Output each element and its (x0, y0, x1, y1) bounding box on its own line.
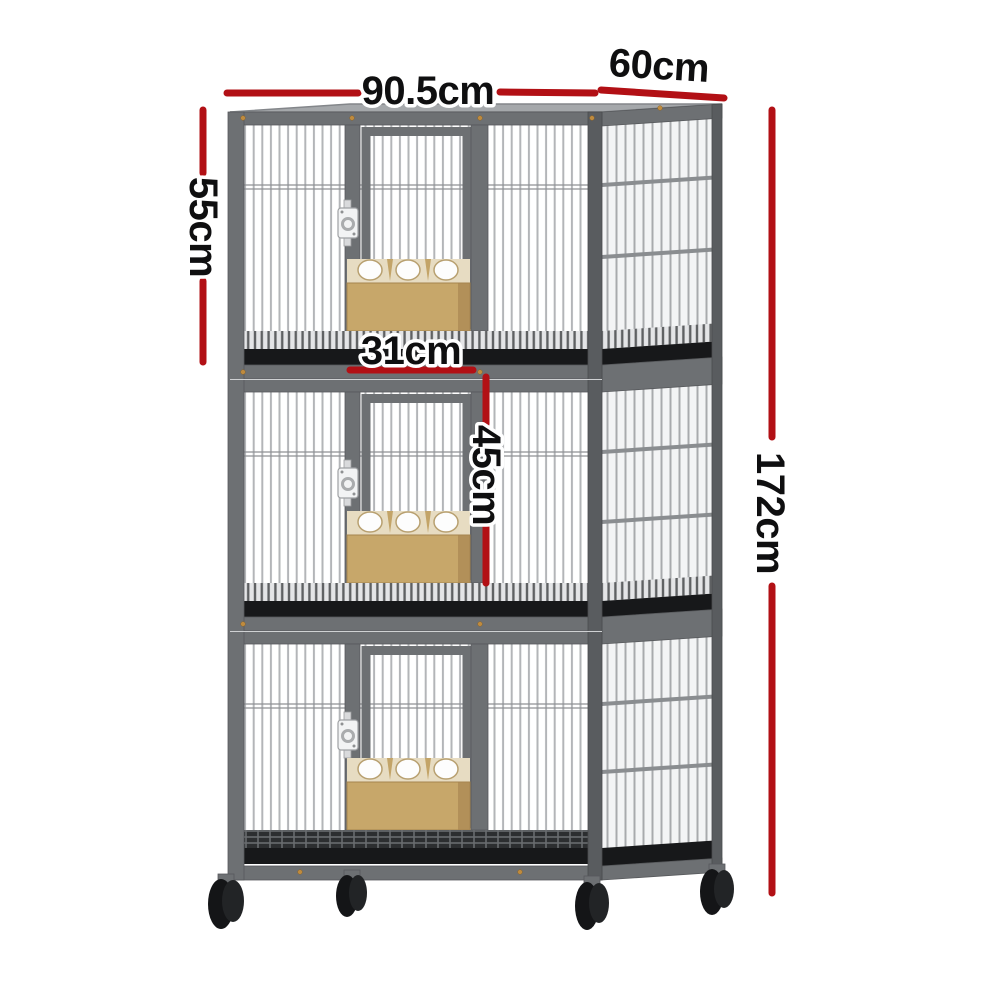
left-corner-post (228, 112, 244, 880)
dimension-label-depth: 60cm (608, 41, 711, 91)
cage-right-side (602, 104, 722, 880)
feeder-box (347, 758, 470, 830)
cage-tier-3 (230, 631, 602, 880)
cage-dimension-diagram: 90.5cm 60cm 55cm 31cm 45cm 172cm (0, 0, 1000, 1000)
caster-wheel (208, 874, 244, 929)
front-right-corner-post (588, 112, 602, 880)
bottom-tray (230, 848, 602, 864)
dimension-label-width: 90.5cm (362, 69, 495, 113)
feeder-box (347, 259, 470, 331)
tier1-top-rail (230, 112, 602, 125)
dimension-line-depth (601, 90, 724, 98)
tier3-top-rail (230, 631, 602, 644)
bottom-rail (230, 866, 602, 880)
dimension-label-total-height: 172cm (748, 452, 792, 574)
back-corner-post (712, 104, 722, 873)
cage-tier-2 (230, 379, 602, 631)
dimension-label-door-height: 45cm (464, 425, 508, 525)
feeder-box (347, 511, 470, 583)
tier2-top-rail (230, 379, 602, 392)
dimension-label-tier-height: 55cm (181, 177, 225, 277)
caster-wheel (575, 876, 609, 930)
wire-floor (244, 830, 588, 848)
dimension-line-width-right (500, 92, 595, 93)
divider-tray-2 (230, 601, 602, 617)
dimension-label-door-width: 31cm (361, 329, 461, 373)
product-dimension-image: 90.5cm 60cm 55cm 31cm 45cm 172cm (0, 0, 1000, 1000)
